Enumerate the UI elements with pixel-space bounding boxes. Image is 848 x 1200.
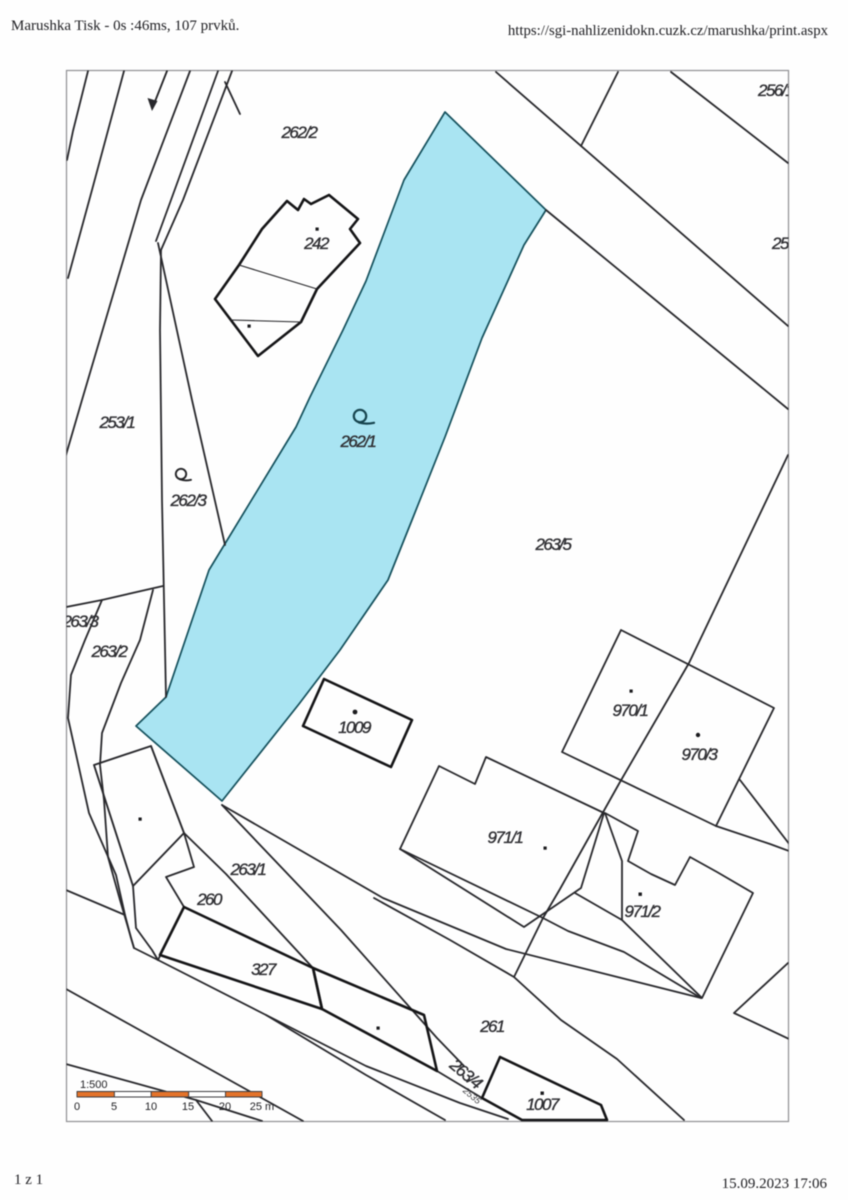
svg-text:1007: 1007 (526, 1095, 560, 1114)
svg-text:263/5: 263/5 (534, 535, 572, 554)
svg-text:10: 10 (145, 1101, 157, 1113)
svg-text:262/3: 262/3 (169, 491, 207, 510)
svg-text:260: 260 (196, 890, 223, 909)
svg-text:263/2: 263/2 (90, 642, 128, 661)
svg-text:971/1: 971/1 (487, 828, 523, 847)
svg-text:261: 261 (479, 1017, 505, 1036)
svg-text:1 z 1: 1 z 1 (14, 1172, 43, 1188)
svg-text:1:500: 1:500 (80, 1079, 108, 1091)
svg-text:971/2: 971/2 (624, 902, 661, 921)
svg-text:25 m: 25 m (250, 1101, 274, 1113)
svg-text:242: 242 (303, 234, 330, 253)
svg-text:Marushka Tisk - 0s :46ms, 107: Marushka Tisk - 0s :46ms, 107 prvků. (11, 18, 239, 34)
svg-text:970/3: 970/3 (681, 745, 718, 764)
svg-text:0: 0 (74, 1101, 80, 1113)
svg-text:262/1: 262/1 (339, 432, 376, 451)
svg-text:https://sgi-nahlizenidokn.cuzk: https://sgi-nahlizenidokn.cuzk.cz/marush… (508, 23, 829, 39)
svg-text:1009: 1009 (338, 718, 372, 737)
svg-text:263/1: 263/1 (229, 860, 266, 879)
svg-text:262/2: 262/2 (280, 123, 318, 142)
svg-text:5: 5 (111, 1101, 117, 1113)
svg-text:263/3: 263/3 (61, 612, 99, 631)
svg-text:970/1: 970/1 (612, 701, 648, 720)
svg-text:256/: 256/ (771, 234, 803, 253)
svg-text:253/1: 253/1 (98, 413, 135, 432)
svg-text:15.09.2023 17:06: 15.09.2023 17:06 (722, 1176, 828, 1192)
svg-text:20: 20 (219, 1101, 231, 1113)
svg-text:15: 15 (182, 1101, 194, 1113)
svg-text:327: 327 (251, 960, 277, 979)
